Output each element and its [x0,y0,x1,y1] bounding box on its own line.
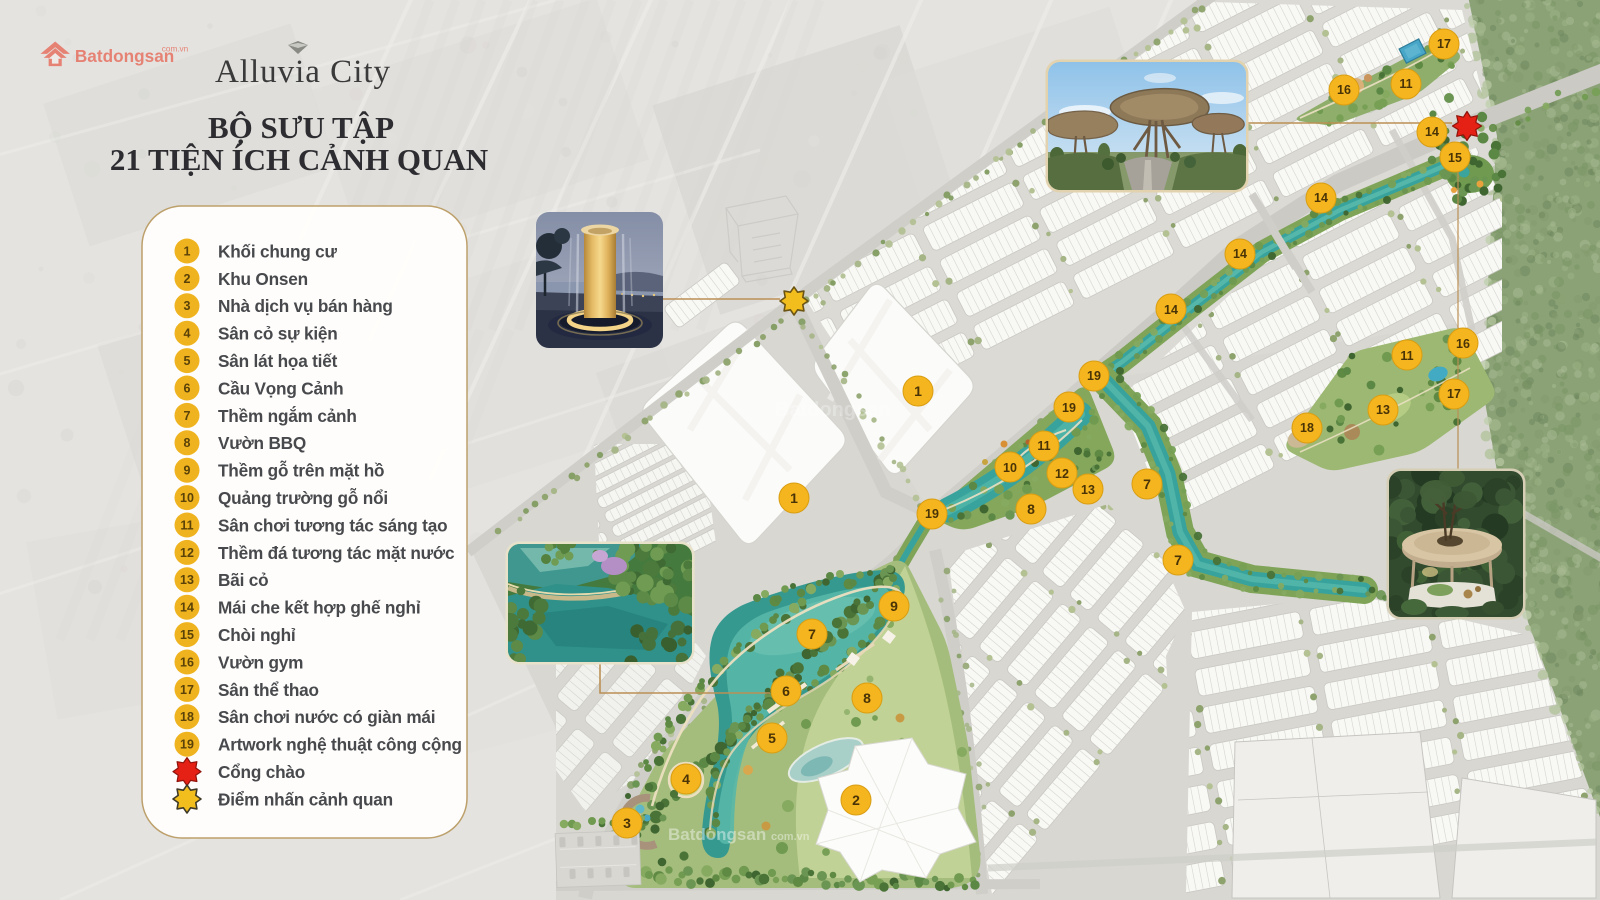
svg-text:Sân cỏ sự kiện: Sân cỏ sự kiện [218,324,338,344]
svg-text:8: 8 [863,690,871,706]
svg-text:8: 8 [1027,501,1035,517]
svg-text:Mái che kết hợp ghế nghỉ: Mái che kết hợp ghế nghỉ [218,598,421,618]
svg-text:7: 7 [1143,476,1151,492]
svg-text:16: 16 [1456,337,1470,351]
svg-text:18: 18 [180,710,194,724]
svg-text:Điểm nhấn cảnh quan: Điểm nhấn cảnh quan [218,789,393,809]
svg-text:17: 17 [180,683,194,697]
svg-text:11: 11 [1399,77,1412,91]
svg-text:14: 14 [1425,125,1439,139]
svg-text:Sân thể thao: Sân thể thao [218,680,319,700]
svg-text:BỘ SƯU TẬP: BỘ SƯU TẬP [208,110,394,145]
svg-text:1: 1 [790,490,798,506]
svg-text:4: 4 [682,771,690,787]
svg-text:19: 19 [1062,401,1076,415]
svg-text:Sân chơi tương tác sáng tạo: Sân chơi tương tác sáng tạo [218,515,447,535]
svg-text:14: 14 [1314,191,1328,205]
svg-text:5: 5 [768,730,776,746]
svg-text:3: 3 [623,815,631,831]
svg-text:16: 16 [180,655,194,669]
svg-text:12: 12 [180,546,194,560]
svg-text:Khu Onsen: Khu Onsen [218,269,308,289]
svg-text:13: 13 [180,573,194,587]
svg-text:6: 6 [782,683,790,699]
svg-text:Batdongsan: Batdongsan [775,399,891,421]
svg-text:3: 3 [184,299,191,313]
svg-text:1: 1 [914,383,922,399]
svg-text:7: 7 [1174,552,1182,568]
svg-text:12: 12 [1055,467,1069,481]
svg-text:15: 15 [1448,151,1462,165]
svg-text:Cầu Vọng Cảnh: Cầu Vọng Cảnh [218,378,343,398]
svg-text:14: 14 [1164,303,1178,317]
svg-text:9: 9 [184,464,191,478]
svg-text:Thềm đá tương tác mặt nước: Thềm đá tương tác mặt nước [218,543,455,563]
svg-text:6: 6 [184,381,191,395]
svg-text:19: 19 [925,507,939,521]
svg-text:com.vn: com.vn [162,44,189,53]
svg-text:Sân lát họa tiết: Sân lát họa tiết [218,351,338,371]
svg-text:19: 19 [1087,369,1101,383]
svg-text:21 TIỆN ÍCH CẢNH QUAN: 21 TIỆN ÍCH CẢNH QUAN [110,142,488,177]
svg-text:14: 14 [1233,247,1247,261]
svg-text:Alluvia City: Alluvia City [215,54,391,90]
svg-text:19: 19 [180,738,194,752]
svg-text:Sân chơi nước có giàn mái: Sân chơi nước có giàn mái [218,707,435,727]
svg-text:7: 7 [808,626,816,642]
svg-text:Thềm gỗ trên mặt hồ: Thềm gỗ trên mặt hồ [218,461,384,481]
svg-text:9: 9 [890,598,898,614]
svg-text:Khối chung cư: Khối chung cư [218,241,338,261]
svg-text:2: 2 [852,792,860,808]
svg-text:11: 11 [1400,349,1413,363]
svg-text:16: 16 [1337,83,1351,97]
svg-text:1: 1 [184,244,191,258]
svg-text:Thềm ngắm cảnh: Thềm ngắm cảnh [218,406,357,426]
svg-text:14: 14 [180,601,194,615]
svg-text:Artwork nghệ thuật công cộng: Artwork nghệ thuật công cộng [218,735,462,755]
svg-text:Batdongsan: Batdongsan [75,46,174,66]
svg-text:13: 13 [1081,483,1095,497]
svg-text:4: 4 [184,327,191,341]
svg-text:2: 2 [184,272,191,286]
svg-text:Cổng chào: Cổng chào [218,762,305,782]
svg-text:11: 11 [180,518,193,532]
svg-text:Vườn BBQ: Vườn BBQ [218,433,306,453]
svg-text:Vườn gym: Vườn gym [218,652,303,672]
svg-text:10: 10 [180,491,194,505]
svg-text:Nhà dịch vụ bán hàng: Nhà dịch vụ bán hàng [218,296,393,316]
svg-text:Bãi cỏ: Bãi cỏ [218,570,268,590]
svg-text:Chòi nghỉ: Chòi nghỉ [218,625,296,645]
svg-text:7: 7 [184,409,191,423]
svg-text:17: 17 [1447,387,1461,401]
svg-text:Quảng trường gỗ nổi: Quảng trường gỗ nổi [218,488,388,508]
svg-text:5: 5 [184,354,191,368]
svg-text:11: 11 [1037,439,1050,453]
svg-text:18: 18 [1300,421,1314,435]
svg-text:15: 15 [180,628,194,642]
svg-text:17: 17 [1437,37,1451,51]
svg-text:10: 10 [1003,461,1017,475]
svg-text:8: 8 [184,436,191,450]
svg-text:13: 13 [1376,403,1390,417]
